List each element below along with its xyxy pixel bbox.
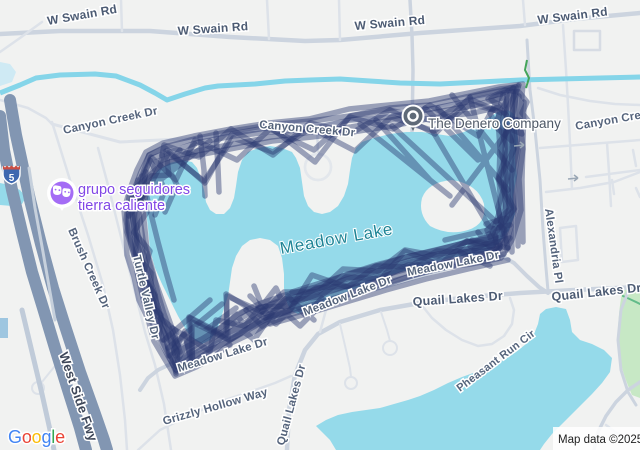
svg-text:Google: Google	[8, 427, 65, 447]
svg-text:5: 5	[9, 173, 15, 184]
svg-text:Map data ©2025: Map data ©2025	[558, 434, 640, 446]
svg-text:tierra caliente: tierra caliente	[78, 198, 165, 214]
svg-text:The Denero Company: The Denero Company	[428, 116, 561, 131]
svg-text:grupo seguidores: grupo seguidores	[78, 182, 190, 198]
